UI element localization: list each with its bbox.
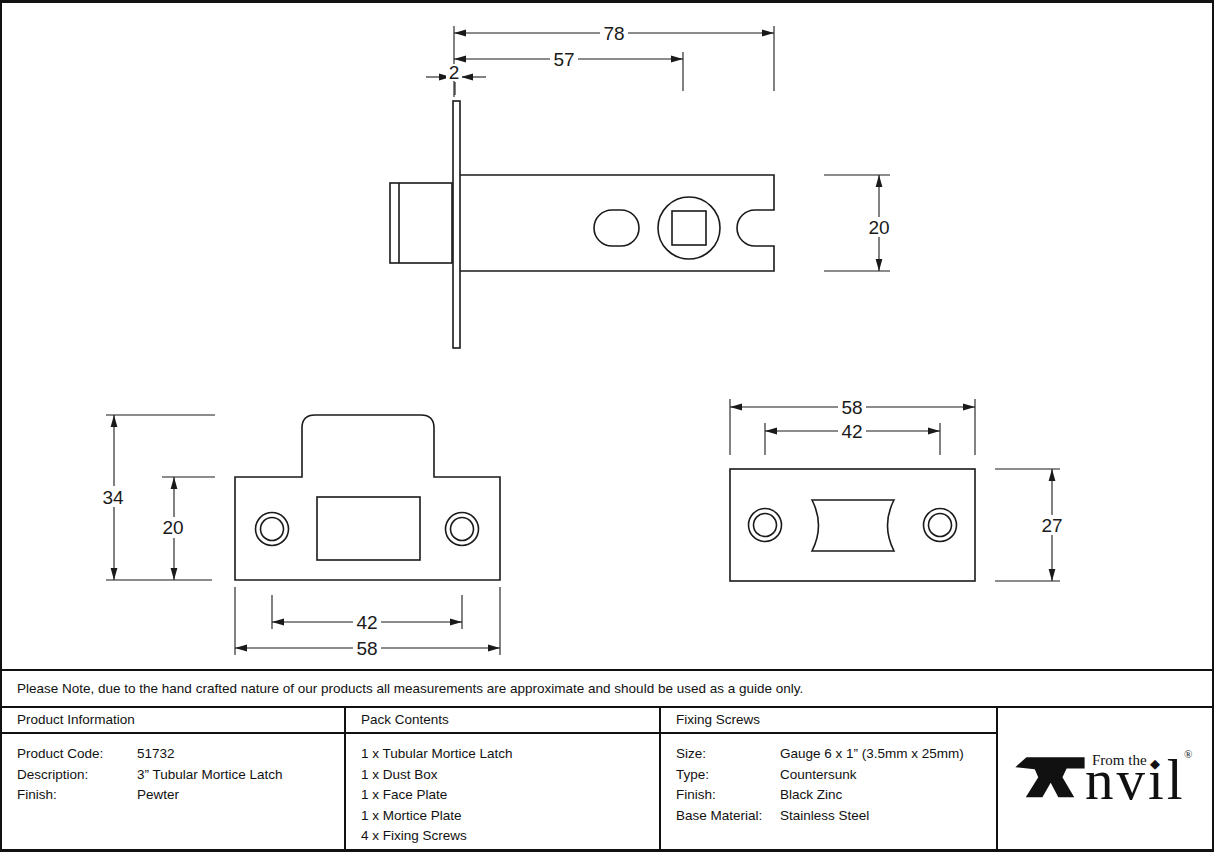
field-label: Size: bbox=[676, 744, 780, 765]
field-value: Pewter bbox=[137, 785, 179, 806]
field-value: Countersunk bbox=[780, 765, 857, 786]
spindle-square-hole bbox=[672, 211, 706, 245]
pack-contents-item: 1 x Tubular Mortice Latch bbox=[361, 744, 645, 765]
pack-contents-item: 4 x Fixing Screws bbox=[361, 826, 645, 847]
product-information-header: Product Information bbox=[2, 708, 344, 734]
field-value: Stainless Steel bbox=[780, 806, 869, 827]
field-label: Base Material: bbox=[676, 806, 780, 827]
dim-label-screw-centres: 42 bbox=[841, 421, 862, 442]
field-value: 51732 bbox=[137, 744, 175, 765]
field-value: Gauge 6 x 1” (3.5mm x 25mm) bbox=[780, 744, 964, 765]
fixing-screws-row: Finish: Black Zinc bbox=[676, 785, 982, 806]
dim-label-faceplate-thickness: 2 bbox=[449, 62, 460, 83]
logo-wordmark: nvıl bbox=[1085, 753, 1186, 807]
mortice-plate-drawing: 34 20 42 58 bbox=[99, 415, 500, 659]
field-label: Finish: bbox=[676, 785, 780, 806]
spec-table-columns: Product Information Product Code: 51732 … bbox=[2, 708, 1212, 849]
latch-faceplate bbox=[453, 101, 460, 348]
pack-contents-item: 1 x Dust Box bbox=[361, 765, 645, 786]
obround-hole bbox=[594, 210, 639, 246]
dim-label-overall-length: 78 bbox=[603, 23, 624, 44]
fixing-screws-row: Type: Countersunk bbox=[676, 765, 982, 786]
field-label: Finish: bbox=[17, 785, 137, 806]
field-label: Description: bbox=[17, 765, 137, 786]
product-info-row: Product Code: 51732 bbox=[17, 744, 330, 765]
dim-label-body-height: 20 bbox=[868, 217, 889, 238]
fixing-screws-body: Size: Gauge 6 x 1” (3.5mm x 25mm) Type: … bbox=[661, 734, 996, 826]
product-info-row: Finish: Pewter bbox=[17, 785, 330, 806]
pack-contents-item: 1 x Mortice Plate bbox=[361, 806, 645, 827]
logo-i-tittle-diamond-icon: ◆ bbox=[1150, 756, 1160, 771]
pack-contents-header: Pack Contents bbox=[346, 708, 659, 734]
dim-label-plate-height: 20 bbox=[162, 517, 183, 538]
pack-contents-column: Pack Contents 1 x Tubular Mortice Latch … bbox=[346, 708, 661, 849]
note-row: Please Note, due to the hand crafted nat… bbox=[2, 669, 1212, 708]
face-plate-drawing: 58 42 27 bbox=[730, 397, 1066, 582]
spec-sheet-page: 78 57 2 20 bbox=[0, 0, 1214, 852]
anvil-icon bbox=[1014, 750, 1086, 800]
product-info-row: Description: 3” Tubular Mortice Latch bbox=[17, 765, 330, 786]
spec-table: Please Note, due to the hand crafted nat… bbox=[2, 669, 1212, 849]
fixing-screws-row: Base Material: Stainless Steel bbox=[676, 806, 982, 827]
registered-trademark-symbol: ® bbox=[1184, 748, 1192, 760]
dim-label-screw-centres: 42 bbox=[356, 612, 377, 633]
fixing-screws-header: Fixing Screws bbox=[661, 708, 996, 734]
face-plate-outline bbox=[730, 469, 975, 581]
from-the-anvil-logo: From the nvıl ◆ ® bbox=[998, 708, 1212, 849]
dim-label-plate-width: 58 bbox=[841, 397, 862, 418]
technical-drawings: 78 57 2 20 bbox=[2, 3, 1212, 669]
fixing-screws-row: Size: Gauge 6 x 1” (3.5mm x 25mm) bbox=[676, 744, 982, 765]
brand-logo-cell: From the nvıl ◆ ® bbox=[998, 708, 1212, 849]
latch-side-view-drawing: 78 57 2 20 bbox=[390, 23, 893, 349]
dim-label-body-length: 57 bbox=[553, 49, 574, 70]
fixing-screws-column: Fixing Screws Size: Gauge 6 x 1” (3.5mm … bbox=[661, 708, 998, 849]
field-label: Product Code: bbox=[17, 744, 137, 765]
dim-label-plate-width: 58 bbox=[356, 638, 377, 659]
field-label: Type: bbox=[676, 765, 780, 786]
pack-contents-item: 1 x Face Plate bbox=[361, 785, 645, 806]
product-information-column: Product Information Product Code: 51732 … bbox=[2, 708, 346, 849]
field-value: Black Zinc bbox=[780, 785, 842, 806]
note-text: Please Note, due to the hand crafted nat… bbox=[17, 681, 803, 696]
dim-label-overall-height: 34 bbox=[102, 487, 124, 508]
dim-label-plate-height: 27 bbox=[1041, 515, 1062, 536]
pack-contents-body: 1 x Tubular Mortice Latch 1 x Dust Box 1… bbox=[346, 734, 659, 847]
field-value: 3” Tubular Mortice Latch bbox=[137, 765, 283, 786]
product-information-body: Product Code: 51732 Description: 3” Tubu… bbox=[2, 734, 344, 806]
